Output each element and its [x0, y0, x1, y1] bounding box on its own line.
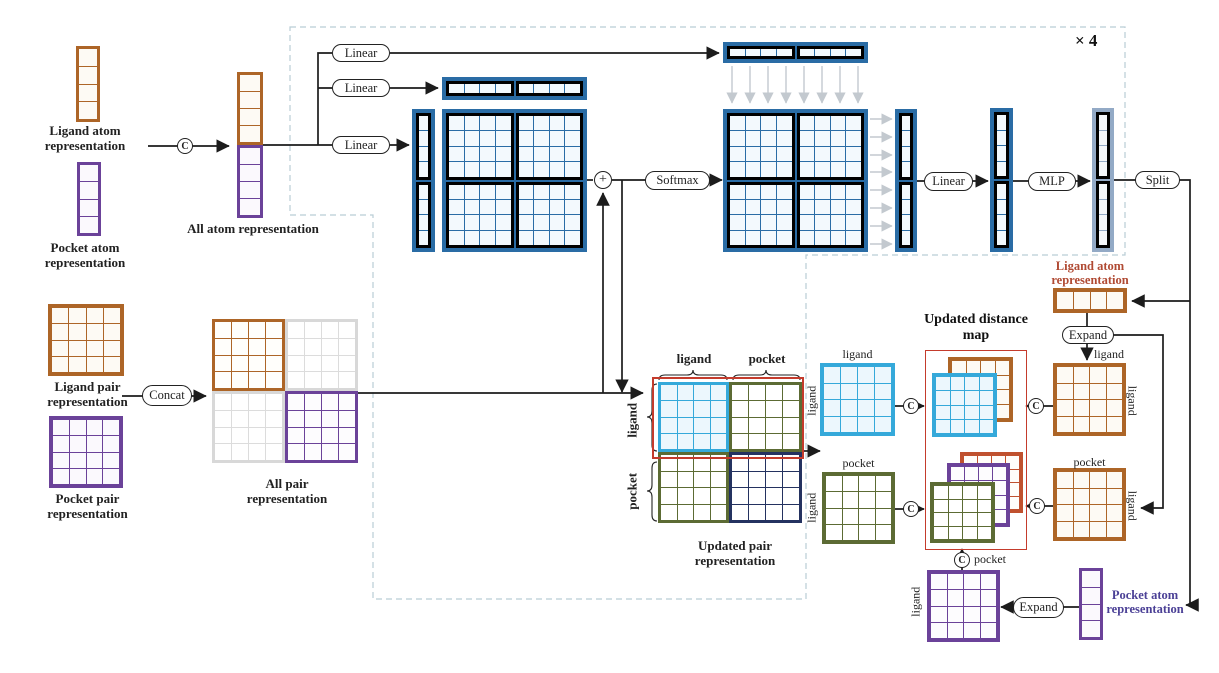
attention-weight-matrix [723, 109, 868, 252]
pocket-atom-representation-grid [77, 162, 101, 236]
pocket-atom-label: Pocket atom representation [25, 241, 145, 270]
linear-v-pill: Linear [332, 136, 390, 154]
linear-q-pill: Linear [332, 44, 390, 62]
value-row-matrix [723, 42, 868, 63]
right-ligand-ligand-grid [1053, 363, 1126, 436]
updated-pair-pocket-pocket-grid [729, 452, 802, 523]
linear-out-column-matrix [990, 108, 1013, 252]
all-pair-ligand-ligand-grid [212, 319, 285, 391]
ligand-atom-representation-grid [76, 46, 100, 122]
ligand-rows-outline [652, 377, 804, 459]
split-map-pocket-side-label: ligand [805, 478, 818, 538]
all-pair-label: All pair representation [228, 477, 346, 506]
bottom-purple-side-label: ligand [909, 572, 922, 632]
all-atom-ligand-half-grid [237, 72, 263, 145]
updated-pair-pocket-ligand-grid [658, 452, 729, 523]
updated-pair-caption: Updated pair representation [685, 539, 785, 568]
split-map-ligand-top-label: ligand [820, 348, 895, 361]
updated-pair-row-pocket: pocket [626, 461, 641, 521]
concat-node-atoms: C [177, 138, 193, 154]
concat-node-dmap-right-top: C [1028, 398, 1044, 414]
key-row-matrix [442, 77, 587, 100]
all-atom-label: All atom representation [168, 222, 338, 237]
all-pair-pocket-pocket-grid [285, 391, 358, 463]
architecture-diagram: Ligand atom representation Pocket atom r… [0, 0, 1219, 673]
split-map-pocket-grid [822, 472, 895, 544]
right-pocket-atom-column-grid [1079, 568, 1103, 640]
right-pocket-ligand-grid [1053, 468, 1126, 541]
concat-node-ligand-map: C [903, 398, 919, 414]
mlp-pill: MLP [1028, 172, 1076, 191]
expand-ligand-label: ligand [1094, 348, 1139, 361]
concat-node-dmap-right-bottom: C [1029, 498, 1045, 514]
right-pocket-atom-label: Pocket atom representation [1101, 588, 1189, 616]
distance-map-box [925, 350, 1027, 550]
ligand-pair-label: Ligand pair representation [25, 380, 150, 409]
concat-pill: Concat [142, 385, 192, 406]
add-node: + [594, 171, 612, 189]
ligand-pair-representation-grid [48, 304, 124, 376]
pooled-column-matrix [895, 109, 917, 252]
query-column-matrix [412, 109, 435, 252]
distance-map-title: Updated distance map [920, 312, 1032, 343]
ligand-atom-label: Ligand atom representation [25, 124, 145, 153]
right-ligand-atom-label: Ligand atom representation [1044, 259, 1136, 287]
updated-pair-row-ligand: ligand [626, 390, 641, 450]
pocket-pair-representation-grid [49, 416, 123, 488]
right-pocket-ligand-side-label: ligand [1125, 476, 1138, 536]
dmap-bottom-pocket-label: pocket [974, 553, 1019, 566]
updated-pair-col-ligand: ligand [658, 352, 730, 367]
all-pair-topright-gray-grid [285, 319, 358, 391]
split-map-pocket-top-label: pocket [822, 457, 895, 470]
right-pocket-grid-top-label: pocket [1053, 456, 1126, 469]
right-ligand-atom-row-grid [1053, 288, 1127, 313]
split-map-ligand-side-label: ligand [805, 371, 818, 431]
linear-k-pill: Linear [332, 79, 390, 97]
pocket-pair-label: Pocket pair representation [25, 492, 150, 521]
expand-top-pill: Expand [1062, 326, 1114, 344]
split-map-ligand-grid [820, 363, 895, 436]
concat-node-dmap-bottom: C [954, 552, 970, 568]
connector-lines [0, 0, 1219, 673]
split-pill: Split [1135, 171, 1180, 189]
repeat-multiplier: × 4 [1075, 31, 1125, 50]
all-atom-pocket-half-grid [237, 145, 263, 218]
concat-node-pocket-map: C [903, 501, 919, 517]
softmax-pill: Softmax [645, 171, 710, 190]
attention-score-matrix [442, 109, 587, 252]
updated-pair-col-pocket: pocket [731, 352, 803, 367]
linear-out-pill: Linear [924, 172, 973, 191]
expand-bottom-pill: Expand [1013, 597, 1064, 618]
bottom-purple-grid [927, 570, 1000, 642]
right-ligand-ligand-side-label: ligand [1125, 371, 1138, 431]
all-pair-bottomleft-gray-grid [212, 391, 285, 463]
mlp-output-column-matrix [1092, 108, 1114, 252]
